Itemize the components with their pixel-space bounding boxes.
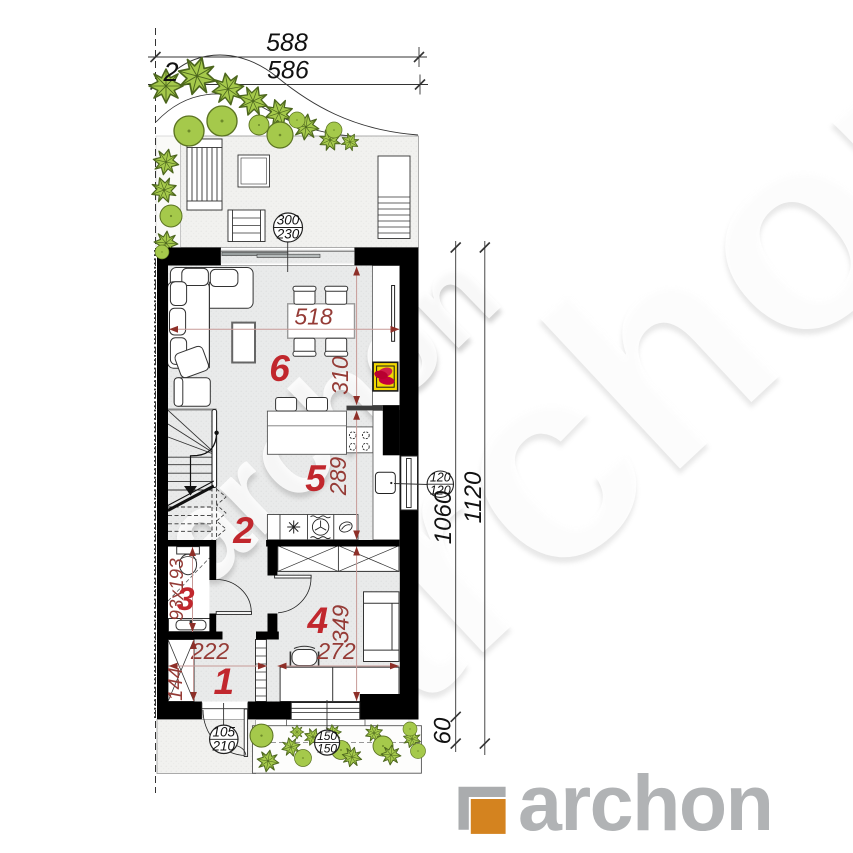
svg-text:6: 6 xyxy=(269,348,290,389)
svg-text:588: 588 xyxy=(266,29,308,57)
svg-text:4: 4 xyxy=(307,600,329,641)
svg-text:2: 2 xyxy=(232,510,254,551)
svg-text:272: 272 xyxy=(316,638,356,664)
svg-text:3: 3 xyxy=(177,581,195,617)
svg-text:60: 60 xyxy=(430,717,457,744)
svg-text:archon: archon xyxy=(518,758,772,847)
svg-text:105: 105 xyxy=(213,724,236,739)
svg-text:289: 289 xyxy=(325,457,351,497)
svg-text:1060: 1060 xyxy=(430,490,457,544)
svg-text:230: 230 xyxy=(276,227,300,242)
svg-text:150: 150 xyxy=(317,742,337,756)
svg-text:1120: 1120 xyxy=(460,471,487,523)
svg-text:2: 2 xyxy=(162,57,178,87)
svg-text:586: 586 xyxy=(267,57,309,85)
svg-text:310: 310 xyxy=(327,356,353,395)
svg-text:300: 300 xyxy=(277,213,300,228)
svg-text:5: 5 xyxy=(305,458,327,499)
svg-text:210: 210 xyxy=(212,738,236,753)
svg-text:144: 144 xyxy=(165,667,187,700)
svg-text:518: 518 xyxy=(294,304,333,330)
svg-text:120: 120 xyxy=(430,471,451,485)
svg-text:1: 1 xyxy=(214,661,235,702)
